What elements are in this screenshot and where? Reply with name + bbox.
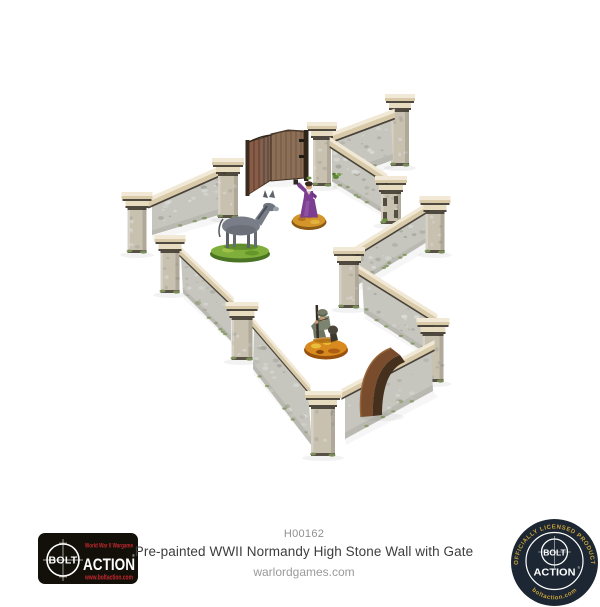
footer: BOLT World War II Wargame ACTION ® www.b… [0,518,600,600]
product-photo [0,0,600,520]
badge-registered-mark: ® [578,566,581,570]
product-info: H00162 Pre-painted WWII Normandy High St… [100,528,508,579]
product-website: warlordgames.com [100,565,508,579]
license-badge: OFFICIALLY LICENSED PRODUCT boltaction.c… [509,519,600,607]
logo-bolt-text: BOLT [49,555,78,567]
product-title: Pre-painted WWII Normandy High Stone Wal… [100,544,508,559]
product-sku: H00162 [100,528,508,540]
badge-bolt-text: BOLT [543,548,566,558]
product-image: BOLT World War II Wargame ACTION ® www.b… [0,0,600,600]
badge-action-text: ACTION [534,567,576,579]
